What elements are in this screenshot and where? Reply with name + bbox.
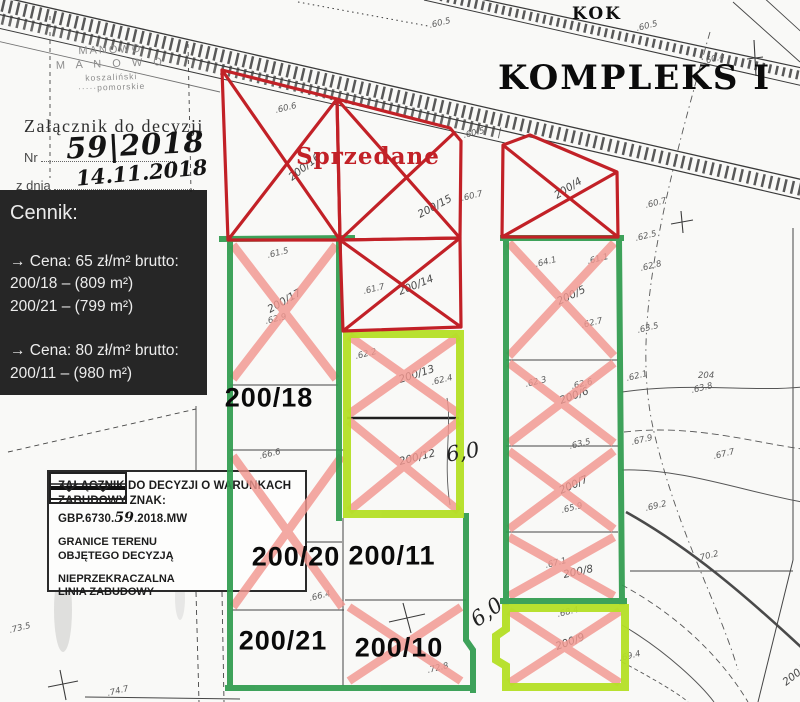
parcel-number-label: 200/12 [398, 447, 437, 468]
elevation-label: .68.4 [556, 605, 579, 620]
price-item: 200/18 – (809 m²) [10, 273, 197, 295]
parcel-number-label: 200/4 [552, 175, 584, 201]
elevation-label: .61.7 [362, 282, 386, 297]
plot-label-200-20: 200/20 [252, 542, 341, 573]
parcel-number-label: 200/14 [397, 273, 436, 298]
elevation-label: .63.5 [636, 321, 659, 336]
price-list-title: Cennik: [10, 202, 197, 225]
parcel-number-label: 200/15 [416, 193, 455, 221]
elevation-label: .60.5 [635, 19, 658, 34]
parcel-number-label: 200/3 [780, 660, 800, 688]
parcel-number-label: 200/9 [554, 631, 587, 653]
legend-label: GRANICE TERENU OBJĘTEGO DECYZJĄ [58, 536, 174, 564]
legend-label: NIEPRZEKRACZALNA LINIA ZABUDOWY [58, 573, 175, 601]
elevation-label: .62.7 [580, 316, 604, 331]
elevation-label: .63.8 [690, 381, 714, 396]
commune-stamp: MANOWO M A N O W O koszaliński ·····pomo… [55, 42, 167, 95]
sold-label: Sprzedane [296, 143, 440, 170]
elevation-label: .62.1 [625, 369, 648, 384]
road-label-kok: KOK [572, 4, 622, 24]
elevation-label: .69.4 [618, 649, 641, 664]
price-list-panel: Cennik: → Cena: 65 zł/m² brutto:200/18 –… [0, 190, 207, 395]
elevation-label: .62.3 [524, 375, 547, 390]
elevation-label: .65.9 [560, 501, 583, 516]
plot-label-200-10: 200/10 [355, 633, 444, 664]
price-item: 200/11 – (980 m²) [10, 363, 197, 385]
elevation-label: .73.5 [8, 621, 31, 636]
elevation-label: .64.1 [534, 255, 557, 270]
page-title: KOMPLEKS I [498, 58, 771, 98]
elevation-label: .61.1 [586, 252, 609, 267]
parcel-number-label: 200/7 [557, 473, 590, 496]
elevation-label: .66.6 [258, 447, 282, 462]
price-section-header: → Cena: 65 zł/m² brutto: [10, 251, 197, 273]
elevation-label: .61.5 [266, 246, 289, 261]
plot-label-200-21: 200/21 [239, 626, 328, 657]
legend-znak-handwritten: 59 [114, 510, 134, 526]
elevation-label: .62.2 [354, 347, 377, 362]
elevation-label: .74.7 [106, 684, 130, 699]
plot-label-200-18: 200/18 [225, 383, 314, 414]
elevation-label: .67.7 [712, 447, 736, 462]
elevation-label: .69.2 [644, 499, 667, 514]
elevation-label: .60.5 [428, 16, 451, 31]
price-item: 200/21 – (799 m²) [10, 296, 197, 318]
legend-label-line: LINIA ZABUDOWY [58, 586, 175, 600]
price-list-sections: → Cena: 65 zł/m² brutto:200/18 – (809 m²… [10, 251, 197, 385]
legend-znak-suffix: .2018.MW [134, 513, 187, 525]
elevation-label: .63.5 [568, 437, 591, 452]
plot-label-200-11: 200/11 [348, 541, 435, 572]
legend-label-line: OBJĘTEGO DECYZJĄ [58, 550, 174, 564]
price-section-header: → Cena: 80 zł/m² brutto: [10, 340, 197, 362]
map-legend-box: ZAŁĄCZNIK DO DECYZJI O WARUNKACH ZABUDOW… [47, 470, 307, 592]
legend-label-line: GRANICE TERENU [58, 536, 174, 550]
scanned-plot-map: .60.6.60.5.60.5.60.4.60.5.60.7.60.7.62.5… [0, 0, 800, 702]
elevation-label: 204 [698, 371, 714, 381]
legend-label-line: NIEPRZEKRACZALNA [58, 573, 175, 587]
parcel-number-label: 200/13 [397, 363, 436, 386]
elevation-label: .60.6 [274, 101, 298, 116]
parcel-number-labels: 200/16200/15200/14200/17200/13200/12200/… [266, 151, 800, 688]
elevation-label: .66.4 [308, 589, 331, 604]
parcel-number-label: 200/5 [555, 284, 588, 308]
price-section-1: → Cena: 80 zł/m² brutto:200/11 – (980 m²… [10, 340, 197, 385]
contour-lines [622, 32, 800, 702]
elevation-label: .62.5 [634, 229, 657, 244]
elevation-label: .62.4 [430, 373, 453, 388]
elevation-label: .60.7 [460, 189, 484, 204]
nr-label: Nr [24, 150, 38, 165]
building-line-symbol-icon [49, 472, 127, 500]
legend-row-building-line: NIEPRZEKRACZALNA LINIA ZABUDOWY [58, 573, 296, 601]
elevation-label: .60.5 [462, 126, 485, 141]
elevation-label: .60.7 [644, 196, 668, 211]
elevation-label: .67.9 [630, 433, 653, 448]
elevation-label: .62.8 [639, 259, 663, 274]
elevation-label: .70.2 [696, 549, 719, 564]
elevation-label: .62.9 [264, 312, 287, 327]
price-section-0: → Cena: 65 zł/m² brutto:200/18 – (809 m²… [10, 251, 197, 318]
